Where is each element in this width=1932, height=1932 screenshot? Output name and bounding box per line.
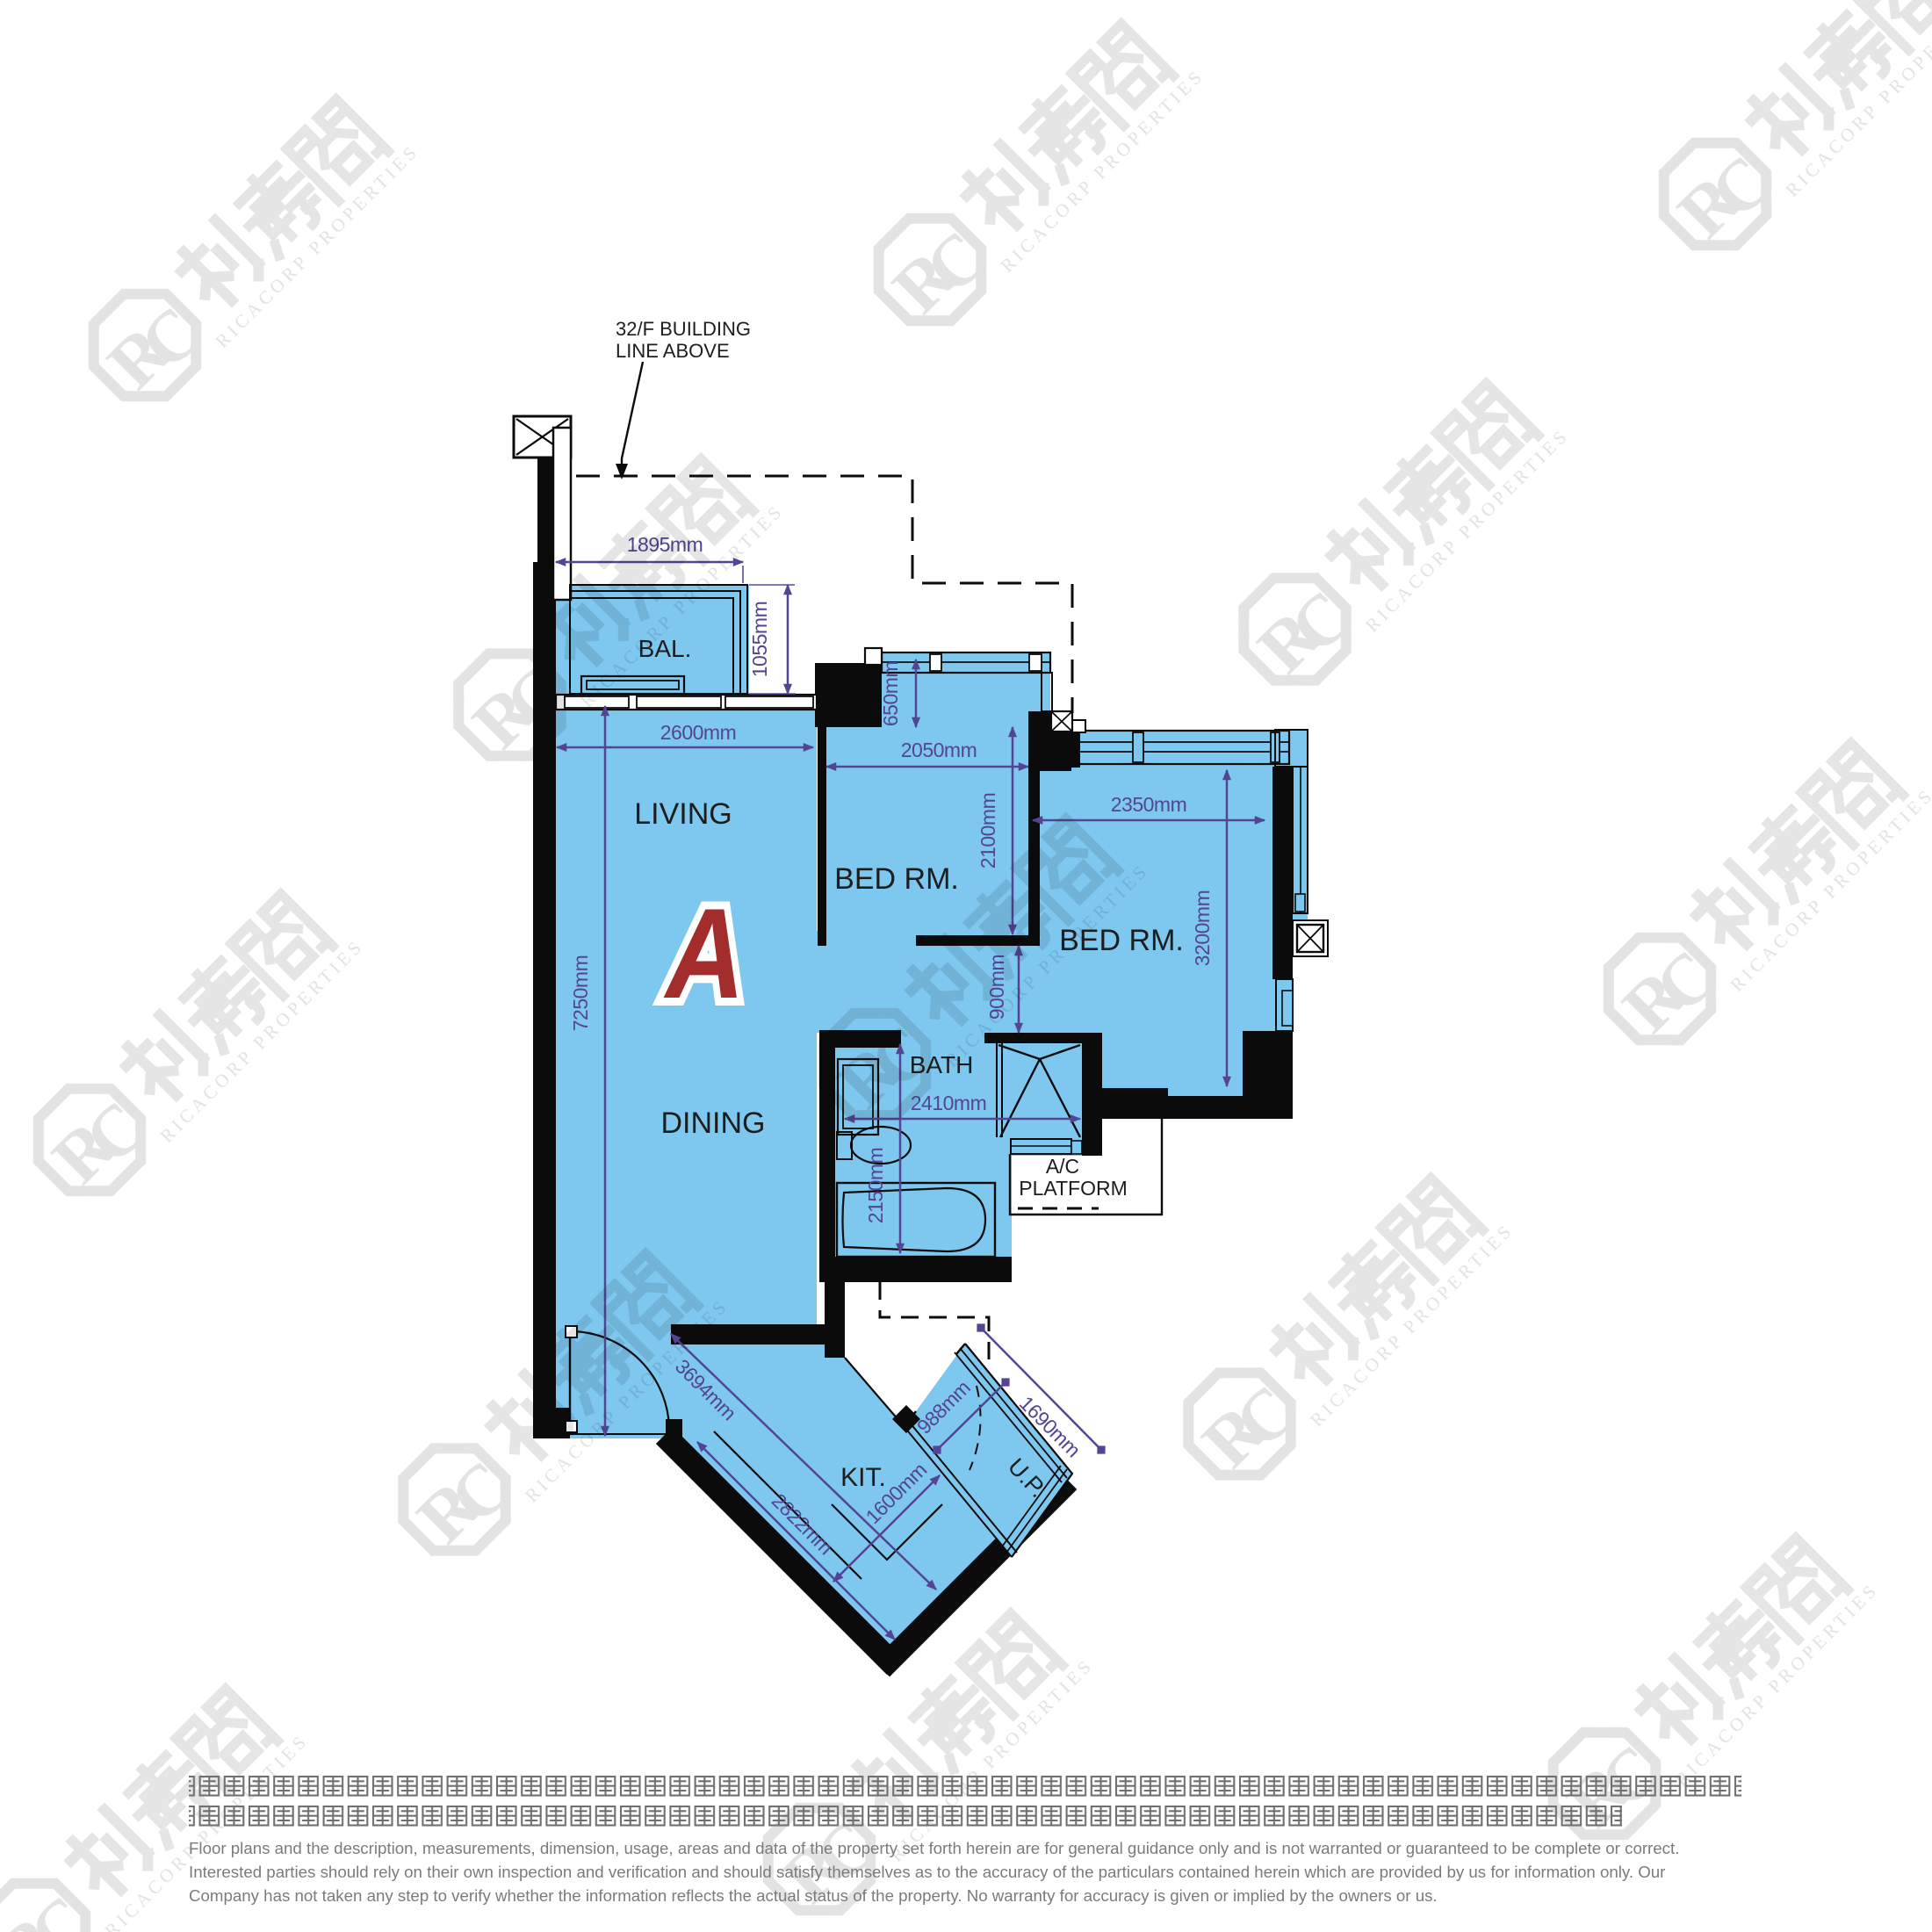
svg-text:A/C: A/C — [1046, 1155, 1079, 1178]
svg-text:LINE ABOVE: LINE ABOVE — [616, 340, 730, 362]
svg-text:2350mm: 2350mm — [1111, 793, 1186, 816]
svg-text:Interested parties should rely: Interested parties should rely on their … — [189, 1863, 1665, 1881]
svg-text:KIT.: KIT. — [840, 1463, 886, 1492]
svg-text:A: A — [663, 881, 744, 1025]
svg-text:2150mm: 2150mm — [864, 1148, 887, 1223]
svg-text:LIVING: LIVING — [634, 797, 732, 831]
svg-text:1055mm: 1055mm — [748, 602, 771, 677]
svg-text:32/F BUILDING: 32/F BUILDING — [616, 318, 751, 340]
svg-text:PLATFORM: PLATFORM — [1019, 1177, 1128, 1200]
svg-text:DINING: DINING — [661, 1107, 766, 1140]
svg-text:BED RM.: BED RM. — [834, 862, 959, 896]
svg-text:Floor plans and the descriptio: Floor plans and the description, measure… — [189, 1839, 1679, 1857]
svg-text:650mm: 650mm — [879, 661, 902, 726]
svg-text:Company has not taken any step: Company has not taken any step to verify… — [189, 1886, 1438, 1905]
svg-text:3200mm: 3200mm — [1191, 890, 1214, 966]
svg-text:7250mm: 7250mm — [569, 955, 592, 1031]
svg-text:2100mm: 2100mm — [977, 793, 999, 869]
svg-text:2050mm: 2050mm — [901, 739, 977, 761]
svg-text:2600mm: 2600mm — [660, 721, 736, 744]
